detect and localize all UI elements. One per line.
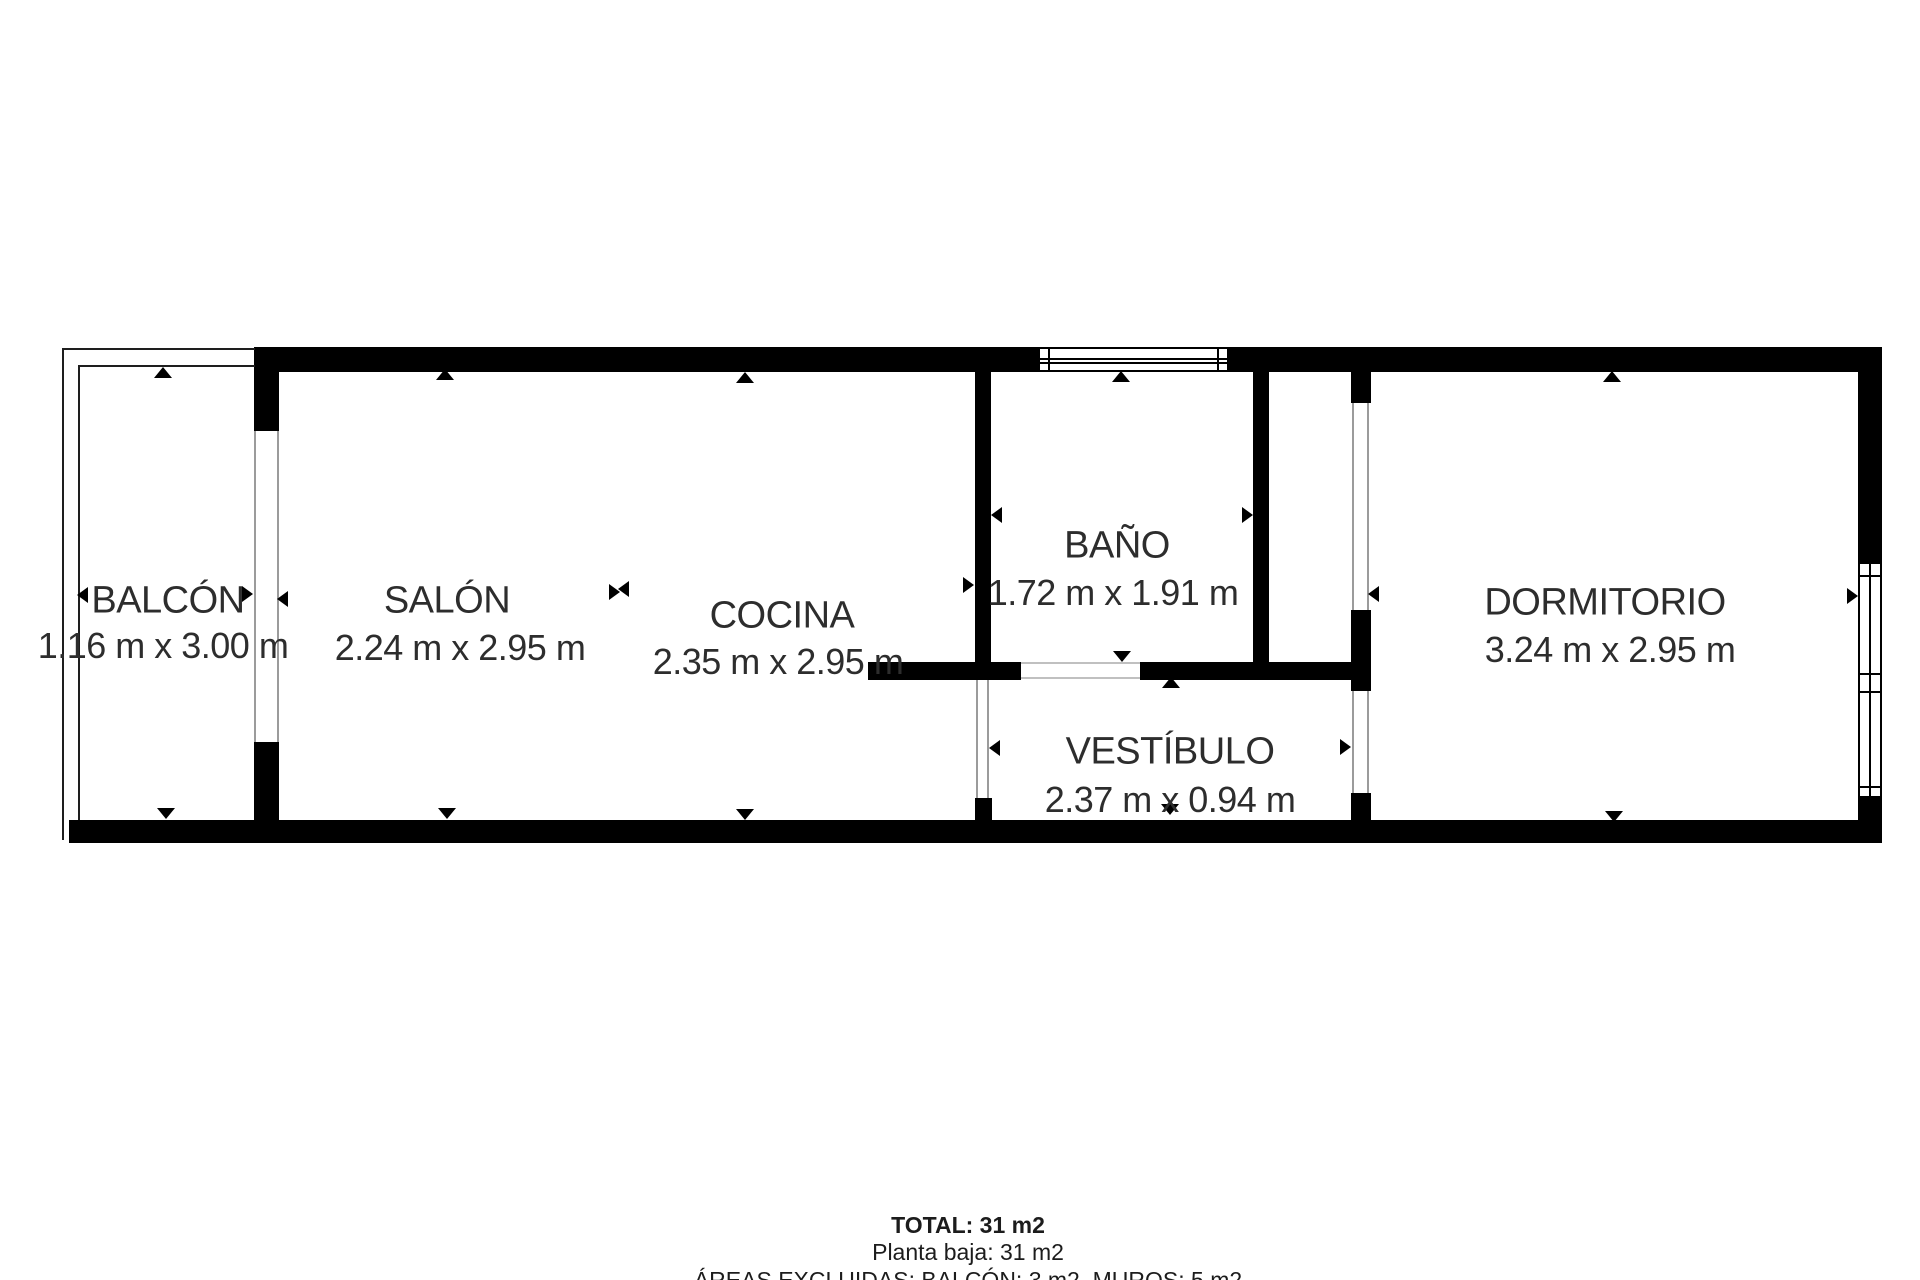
measure-tick-left-icon — [618, 581, 629, 597]
balcony-door-jamb-right — [277, 431, 279, 742]
balcony-door-jamb-left — [254, 431, 256, 742]
wall-dormitorio-stub-top — [1351, 372, 1371, 403]
dormitorio-opening-jamb-right — [1367, 403, 1369, 610]
measure-tick-left-icon — [277, 591, 288, 607]
vestibulo-door-jamb-right — [987, 680, 989, 798]
wall-top-right-segment — [1229, 347, 1882, 372]
wall-top-left-segment — [256, 347, 1038, 372]
measure-tick-down-icon — [1605, 811, 1623, 822]
measure-tick-left-icon — [1368, 586, 1379, 602]
measure-tick-left-icon — [989, 740, 1000, 756]
room-dims-dormitorio: 3.24 m x 2.95 m — [1485, 629, 1736, 671]
wall-balcony-stub-bottom — [254, 742, 279, 820]
measure-tick-up-icon — [1603, 371, 1621, 382]
wall-dormitorio-stub-bottom — [1351, 793, 1371, 820]
summary-floor: Planta baja: 31 m2 — [872, 1239, 1064, 1266]
room-label-vestibulo: VESTÍBULO — [1066, 731, 1275, 774]
bano-door-line-bottom — [1021, 677, 1140, 679]
measure-tick-up-icon — [436, 369, 454, 380]
measure-tick-up-icon — [154, 367, 172, 378]
window-line — [1860, 786, 1880, 788]
room-dims-salon: 2.24 m x 2.95 m — [335, 627, 586, 669]
measure-tick-down-icon — [736, 809, 754, 820]
room-dims-vestibulo: 2.37 m x 0.94 m — [1045, 779, 1296, 821]
room-dims-bano: 1.72 m x 1.91 m — [988, 572, 1239, 614]
room-label-cocina: COCINA — [710, 595, 855, 638]
measure-tick-up-icon — [1162, 677, 1180, 688]
window-line — [1869, 564, 1871, 796]
measure-tick-down-icon — [438, 808, 456, 819]
wall-bano-left — [975, 372, 991, 680]
summary-total: TOTAL: 31 m2 — [891, 1212, 1045, 1239]
dormitorio-door-jamb-right — [1367, 691, 1369, 793]
window-line — [1860, 673, 1880, 675]
window-line — [1040, 358, 1227, 360]
measure-tick-left-icon — [77, 587, 88, 603]
window-line — [1217, 349, 1219, 370]
room-dims-balcon: 1.16 m x 3.00 m — [38, 625, 289, 667]
window-line — [1048, 349, 1050, 370]
wall-right-lower — [1858, 798, 1882, 820]
measure-tick-right-icon — [1847, 588, 1858, 604]
room-label-salon: SALÓN — [384, 580, 510, 623]
measure-tick-down-icon — [1113, 651, 1131, 662]
wall-right-upper — [1858, 372, 1882, 562]
wall-balcony-stub-top — [254, 347, 279, 431]
measure-tick-left-icon — [991, 507, 1002, 523]
summary-excluded: ÁREAS EXCLUIDAS: BALCÓN: 3 m2, MUROS: 5 … — [694, 1267, 1242, 1280]
bano-door-line-top — [1021, 662, 1140, 664]
measure-tick-up-icon — [1112, 371, 1130, 382]
balcony-outer-line-left — [62, 348, 64, 840]
dormitorio-door-jamb-left — [1352, 691, 1354, 793]
measure-tick-down-icon — [157, 808, 175, 819]
window-line — [1860, 691, 1880, 693]
measure-tick-right-icon — [1340, 739, 1351, 755]
room-label-dormitorio: DORMITORIO — [1484, 582, 1725, 625]
wall-bottom — [69, 820, 1882, 843]
measure-tick-right-icon — [1242, 507, 1253, 523]
measure-tick-right-icon — [963, 577, 974, 593]
measure-tick-up-icon — [736, 372, 754, 383]
room-label-balcon: BALCÓN — [91, 580, 244, 623]
wall-vestibulo-stub-bottom — [975, 798, 992, 820]
floor-plan: BALCÓN 1.16 m x 3.00 m SALÓN 2.24 m x 2.… — [0, 0, 1920, 1280]
room-label-bano: BAÑO — [1064, 525, 1170, 568]
wall-dormitorio-mid — [1351, 610, 1371, 691]
wall-bano-right — [1253, 372, 1269, 680]
window-line — [1860, 575, 1880, 577]
room-dims-cocina: 2.35 m x 2.95 m — [653, 641, 904, 683]
vestibulo-door-jamb-left — [976, 680, 978, 798]
window-line — [1040, 362, 1227, 364]
window-bano-top — [1038, 347, 1229, 372]
dormitorio-opening-jamb-left — [1352, 403, 1354, 610]
balcony-outer-line-top — [62, 348, 255, 350]
window-dormitorio-right — [1858, 562, 1882, 798]
